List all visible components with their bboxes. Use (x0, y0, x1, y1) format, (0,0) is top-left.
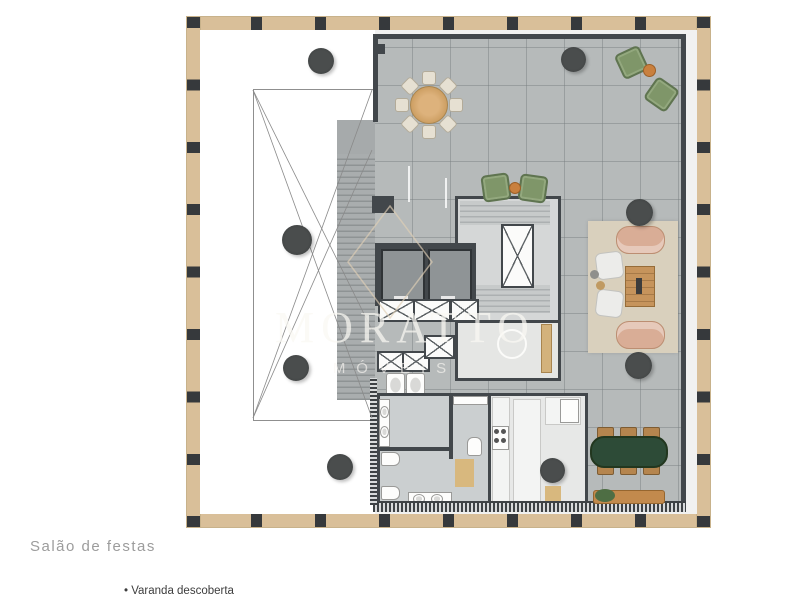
tree-marker (327, 454, 353, 480)
floor-plan-page: MORATTO MÓVEIS Salão de festas • Varanda… (0, 0, 800, 600)
watermark-sub: MÓVEIS (320, 360, 470, 377)
plan-bullet-note: • Varanda descoberta (124, 585, 234, 597)
plan-title: Salão de festas (30, 538, 156, 555)
watermark-brand: MORATTO (275, 302, 535, 353)
tree-marker (283, 355, 309, 381)
plan-linework (0, 0, 800, 600)
tree-marker (282, 225, 312, 255)
